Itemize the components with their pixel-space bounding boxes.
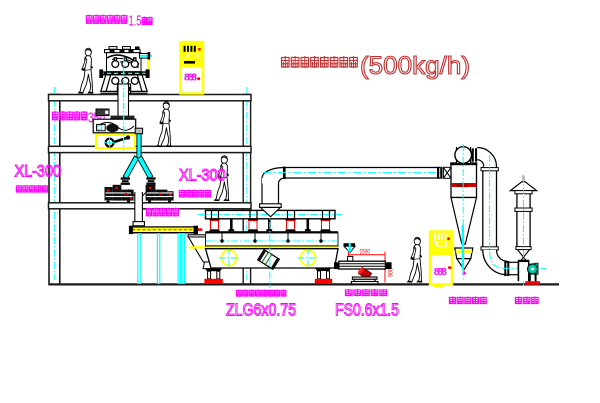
- svg-text:FS0.6x1.5: FS0.6x1.5: [335, 300, 399, 320]
- svg-text:888: 888: [184, 72, 197, 84]
- svg-text:1500: 1500: [360, 249, 371, 255]
- svg-text:XL-300: XL-300: [15, 162, 62, 181]
- svg-text:Φ600: Φ600: [456, 183, 469, 189]
- svg-text:XL-300: XL-300: [179, 166, 226, 185]
- svg-text:ZLG6x0.75: ZLG6x0.75: [226, 300, 296, 320]
- svg-text:1.5: 1.5: [129, 14, 142, 30]
- svg-text:(500kg/h): (500kg/h): [360, 52, 470, 80]
- svg-text:888: 888: [434, 266, 447, 278]
